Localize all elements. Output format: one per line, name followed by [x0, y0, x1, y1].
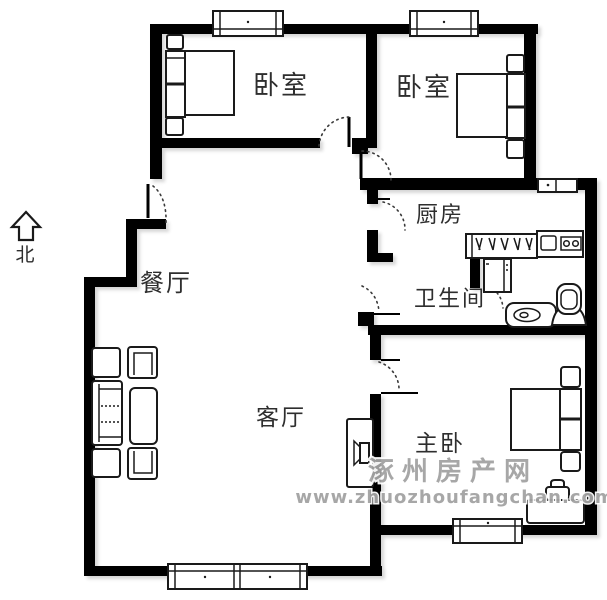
room-labels: 卧室 卧室 厨房 卫生间 餐厅 客厅 主卧 [140, 71, 486, 457]
sofa-set-symbol [92, 347, 157, 479]
bedroom2-bed-symbol [457, 55, 525, 158]
wall-east-outer [585, 178, 597, 535]
watermark-site-name: 涿州房产网 [368, 457, 538, 487]
bedroom1-door-arc [319, 117, 349, 146]
watermark-site-url: www.zhuozhoufangchan.com [295, 487, 607, 508]
bedroom1-bed-symbol [166, 35, 234, 135]
window-bedroom1 [213, 11, 283, 36]
washing-machine-symbol [484, 259, 511, 292]
toilet-symbol [506, 303, 556, 327]
master-door-arc [379, 362, 399, 391]
wall-living-east-upper [370, 330, 381, 360]
wall-kitchen-west-upper [367, 190, 378, 204]
entry-door-arc [153, 186, 166, 224]
wall-top [150, 24, 538, 34]
room-label-living: 客厅 [256, 405, 306, 431]
kitchen-counter-symbol [466, 234, 537, 258]
kitchen-door-arc [383, 202, 405, 230]
wall-bedroom-divider [366, 24, 377, 148]
window-master [453, 519, 522, 543]
room-label-bedroom2: 卧室 [396, 73, 452, 103]
bedroom2-door-arc [362, 151, 391, 180]
wall-west-bedroom1 [150, 24, 162, 179]
north-label: 北 [15, 244, 36, 266]
master-bed-symbol [511, 367, 581, 471]
wash-basin-symbol [552, 284, 586, 325]
window-kitchen [538, 179, 577, 192]
bathroom-door-arc [362, 286, 379, 311]
north-arrow-icon [12, 212, 40, 240]
room-label-master: 主卧 [415, 431, 465, 457]
doors [148, 117, 503, 393]
wall-bedroom1-south [150, 138, 320, 148]
wall-entry-step-v [126, 219, 137, 287]
room-label-bedroom1: 卧室 [253, 71, 309, 101]
floor-plan: 北 卧室 卧室 厨房 卫生间 餐厅 客厅 主卧 涿州房产网 www.zhuozh… [0, 0, 607, 600]
room-label-kitchen: 厨房 [416, 203, 464, 228]
room-label-dining: 餐厅 [140, 269, 192, 297]
wall-bathroom-south [368, 325, 597, 335]
north-compass: 北 [12, 212, 40, 266]
window-living [168, 564, 307, 589]
window-bedroom2 [410, 11, 478, 36]
wall-kitchen-bath-divider [367, 253, 393, 262]
floor-plan-drawing: 北 卧室 卧室 厨房 卫生间 餐厅 客厅 主卧 涿州房产网 www.zhuozh… [0, 0, 607, 600]
kitchen-stove-sink-symbol [537, 231, 583, 257]
room-label-bathroom: 卫生间 [414, 287, 486, 312]
wall-bath-entry-corner [358, 312, 374, 326]
